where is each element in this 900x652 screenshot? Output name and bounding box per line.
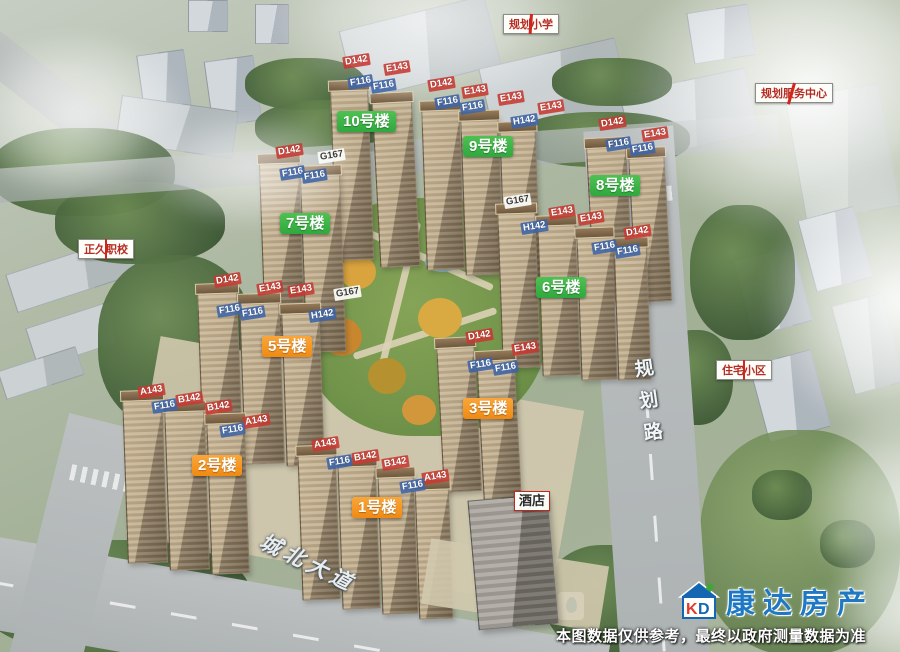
unit-type-label-E143: E143 [461,83,489,99]
unit-type-label-F116: F116 [459,99,486,115]
unit-type-label-F116: F116 [370,78,397,94]
unit-type-label-B142: B142 [175,391,203,407]
unit-type-label-E143: E143 [537,99,565,115]
unit-type-label-E143: E143 [383,60,411,76]
unit-type-label-G167: G167 [503,193,532,209]
unit-type-label-E143: E143 [641,126,669,142]
unit-type-label-F116: F116 [614,243,641,259]
unit-type-label-E143: E143 [287,282,315,298]
svg-text:D: D [698,601,710,618]
unit-type-label-F116: F116 [605,136,632,152]
unit-type-label-D142: D142 [427,76,455,92]
unit-type-label-A143: A143 [137,383,165,399]
unit-type-label-E143: E143 [548,204,576,220]
disclaimer-text: 本图数据仅供参考，最终以政府测量数据为准 [556,625,866,646]
building-label-6号楼: 6号楼 [536,277,586,298]
labels-layer: A143B142B142A143F116F1161号楼A143B142B142A… [0,0,900,652]
unit-type-label-F116: F116 [434,94,461,110]
unit-type-label-B142: B142 [204,399,232,415]
kd-house-icon: K D [678,580,720,622]
hotel-label: 酒店 [514,491,550,511]
svg-text:K: K [686,601,698,618]
unit-type-label-G167: G167 [333,285,362,301]
unit-type-label-G167: G167 [317,148,346,164]
building-label-3号楼: 3号楼 [463,398,513,419]
unit-type-label-D142: D142 [465,328,493,344]
developer-logo: K D 康达房产 [678,580,874,622]
building-label-2号楼: 2号楼 [192,455,242,476]
building-label-7号楼: 7号楼 [280,213,330,234]
unit-type-label-F116: F116 [629,141,656,157]
developer-name: 康达房产 [726,580,874,622]
site-plan-rendering: A143B142B142A143F116F1161号楼A143B142B142A… [0,0,900,652]
unit-type-label-D142: D142 [213,272,241,288]
unit-type-label-D142: D142 [342,53,370,69]
unit-type-label-A143: A143 [421,469,449,485]
building-label-8号楼: 8号楼 [590,175,640,196]
building-label-5号楼: 5号楼 [262,336,312,357]
pointer-line [743,360,746,380]
unit-type-label-F116: F116 [151,398,178,414]
unit-type-label-D142: D142 [623,224,651,240]
unit-type-label-H142: H142 [308,307,336,323]
unit-type-label-B142: B142 [381,455,409,471]
unit-type-label-F116: F116 [492,360,519,376]
unit-type-label-H142: H142 [520,219,548,235]
unit-type-label-D142: D142 [275,143,303,159]
pointer-line [105,239,108,259]
unit-type-label-F116: F116 [239,305,266,321]
unit-type-label-E143: E143 [497,90,525,106]
unit-type-label-A143: A143 [311,436,339,452]
unit-type-label-A143: A143 [242,413,270,429]
unit-type-label-E143: E143 [511,340,539,356]
unit-type-label-F116: F116 [326,454,353,470]
unit-type-label-E143: E143 [256,280,284,296]
building-label-1号楼: 1号楼 [352,497,402,518]
unit-type-label-D142: D142 [598,115,626,131]
unit-type-label-E143: E143 [577,210,605,226]
building-label-10号楼: 10号楼 [337,111,396,132]
unit-type-label-H142: H142 [510,113,538,129]
building-label-9号楼: 9号楼 [463,136,513,157]
unit-type-label-F116: F116 [301,168,328,184]
unit-type-label-F116: F116 [219,422,246,438]
unit-type-label-B142: B142 [351,449,379,465]
unit-type-label-F116: F116 [467,357,494,373]
unit-type-label-F116: F116 [399,478,426,494]
